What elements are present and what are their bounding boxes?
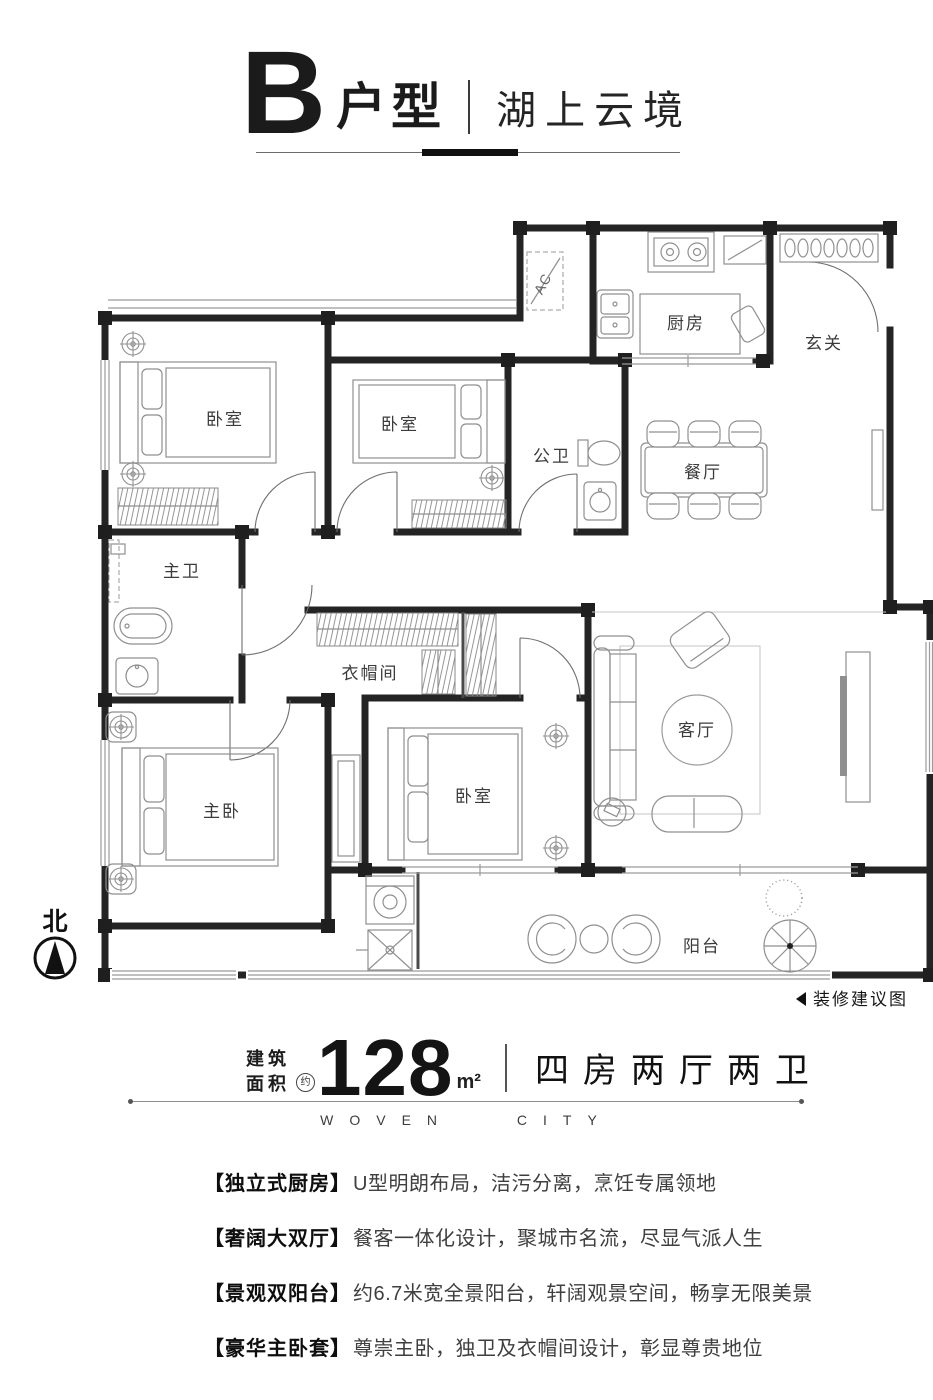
left-triangle-icon bbox=[796, 992, 806, 1006]
room-guest-bath bbox=[578, 440, 620, 520]
feature-head: 【景观双阳台】 bbox=[204, 1283, 351, 1305]
label-bedroom-top-left: 卧室 bbox=[206, 410, 244, 429]
label-bedroom-bottom: 卧室 bbox=[455, 787, 493, 806]
area-label: 建筑 面积 bbox=[246, 1047, 290, 1096]
label-dining: 餐厅 bbox=[684, 463, 722, 482]
room-bedroom-top-mid bbox=[353, 380, 506, 528]
room-cloakroom bbox=[317, 613, 496, 696]
feature-item: 【奢阔大双厅】餐客一体化设计，聚城市名流，尽显气派人生 bbox=[204, 1222, 844, 1251]
compass-label: 北 bbox=[42, 908, 67, 936]
room-bedroom-top-left bbox=[118, 331, 276, 525]
facade-ledge-lines bbox=[108, 300, 516, 308]
feature-text: 餐客一体化设计，聚城市名流，尽显气派人生 bbox=[353, 1228, 763, 1250]
title-divider bbox=[468, 80, 470, 134]
floor-plan: AC bbox=[0, 212, 933, 1022]
label-guest-bath: 公卫 bbox=[533, 447, 571, 466]
rule-endpoint-left bbox=[128, 1099, 133, 1104]
label-master-bath: 主卫 bbox=[163, 562, 201, 581]
title-underline bbox=[256, 149, 680, 157]
room-living bbox=[594, 609, 870, 832]
label-balcony: 阳台 bbox=[683, 937, 721, 956]
feature-text: U型明朗布局，洁污分离，烹饪专属领地 bbox=[353, 1173, 716, 1195]
ac-niche: AC bbox=[527, 252, 563, 310]
label-cloakroom: 衣帽间 bbox=[342, 664, 399, 683]
project-name: 湖上云境 bbox=[496, 78, 692, 136]
floor-plan-page: B 户型 湖上云境 bbox=[0, 0, 933, 1400]
feature-text: 约6.7米宽全景阳台，轩阔观景空间，畅享无限美景 bbox=[353, 1283, 813, 1305]
feature-item: 【景观双阳台】约6.7米宽全景阳台，轩阔观景空间，畅享无限美景 bbox=[204, 1277, 844, 1306]
unit-letter: B bbox=[241, 45, 326, 142]
layout-description: 四房两厅两卫 bbox=[535, 1043, 823, 1092]
label-foyer: 玄关 bbox=[805, 334, 843, 353]
ac-label: AC bbox=[530, 270, 554, 296]
room-foyer bbox=[780, 234, 883, 510]
tree-icon bbox=[764, 920, 816, 972]
feature-text: 尊崇主卧，独卫及衣帽间设计，彰显尊贵地位 bbox=[353, 1338, 763, 1360]
label-bedroom-top-mid: 卧室 bbox=[381, 415, 419, 434]
note-label: 装修建议图 bbox=[813, 990, 908, 1009]
approx-badge: 约 bbox=[296, 1073, 315, 1092]
feature-item: 【独立式厨房】U型明朗布局，洁污分离，烹饪专属领地 bbox=[204, 1167, 844, 1196]
title-rule-accent bbox=[422, 149, 518, 156]
area-unit: m² bbox=[456, 1071, 480, 1094]
area-spec-row: 建筑 面积 约 128 m² 四房两厅两卫 bbox=[246, 1036, 823, 1100]
label-living: 客厅 bbox=[678, 721, 716, 740]
area-value: 128 bbox=[317, 1036, 453, 1100]
windows bbox=[99, 355, 933, 982]
feature-head: 【独立式厨房】 bbox=[204, 1173, 351, 1195]
room-balcony bbox=[356, 876, 816, 972]
feature-item: 【豪华主卧套】尊崇主卧，独卫及衣帽间设计，彰显尊贵地位 bbox=[204, 1332, 844, 1361]
rule-endpoint-right bbox=[799, 1099, 804, 1104]
plan-note: 装修建议图 bbox=[796, 990, 908, 1009]
label-master-bedroom: 主卧 bbox=[203, 802, 241, 821]
feature-head: 【豪华主卧套】 bbox=[204, 1338, 351, 1360]
page-title: B 户型 湖上云境 bbox=[0, 22, 933, 142]
unit-type-label: 户型 bbox=[336, 67, 446, 139]
feature-list: 【独立式厨房】U型明朗布局，洁污分离，烹饪专属领地 【奢阔大双厅】餐客一体化设计… bbox=[204, 1167, 844, 1387]
section-rule bbox=[130, 1101, 802, 1102]
brand-tagline: WOVEN CITY bbox=[0, 1112, 933, 1128]
label-kitchen: 厨房 bbox=[667, 314, 705, 333]
area-divider bbox=[505, 1044, 507, 1092]
north-compass-icon: 北 bbox=[35, 908, 75, 978]
room-kitchen bbox=[597, 232, 766, 354]
feature-head: 【奢阔大双厅】 bbox=[204, 1228, 351, 1250]
